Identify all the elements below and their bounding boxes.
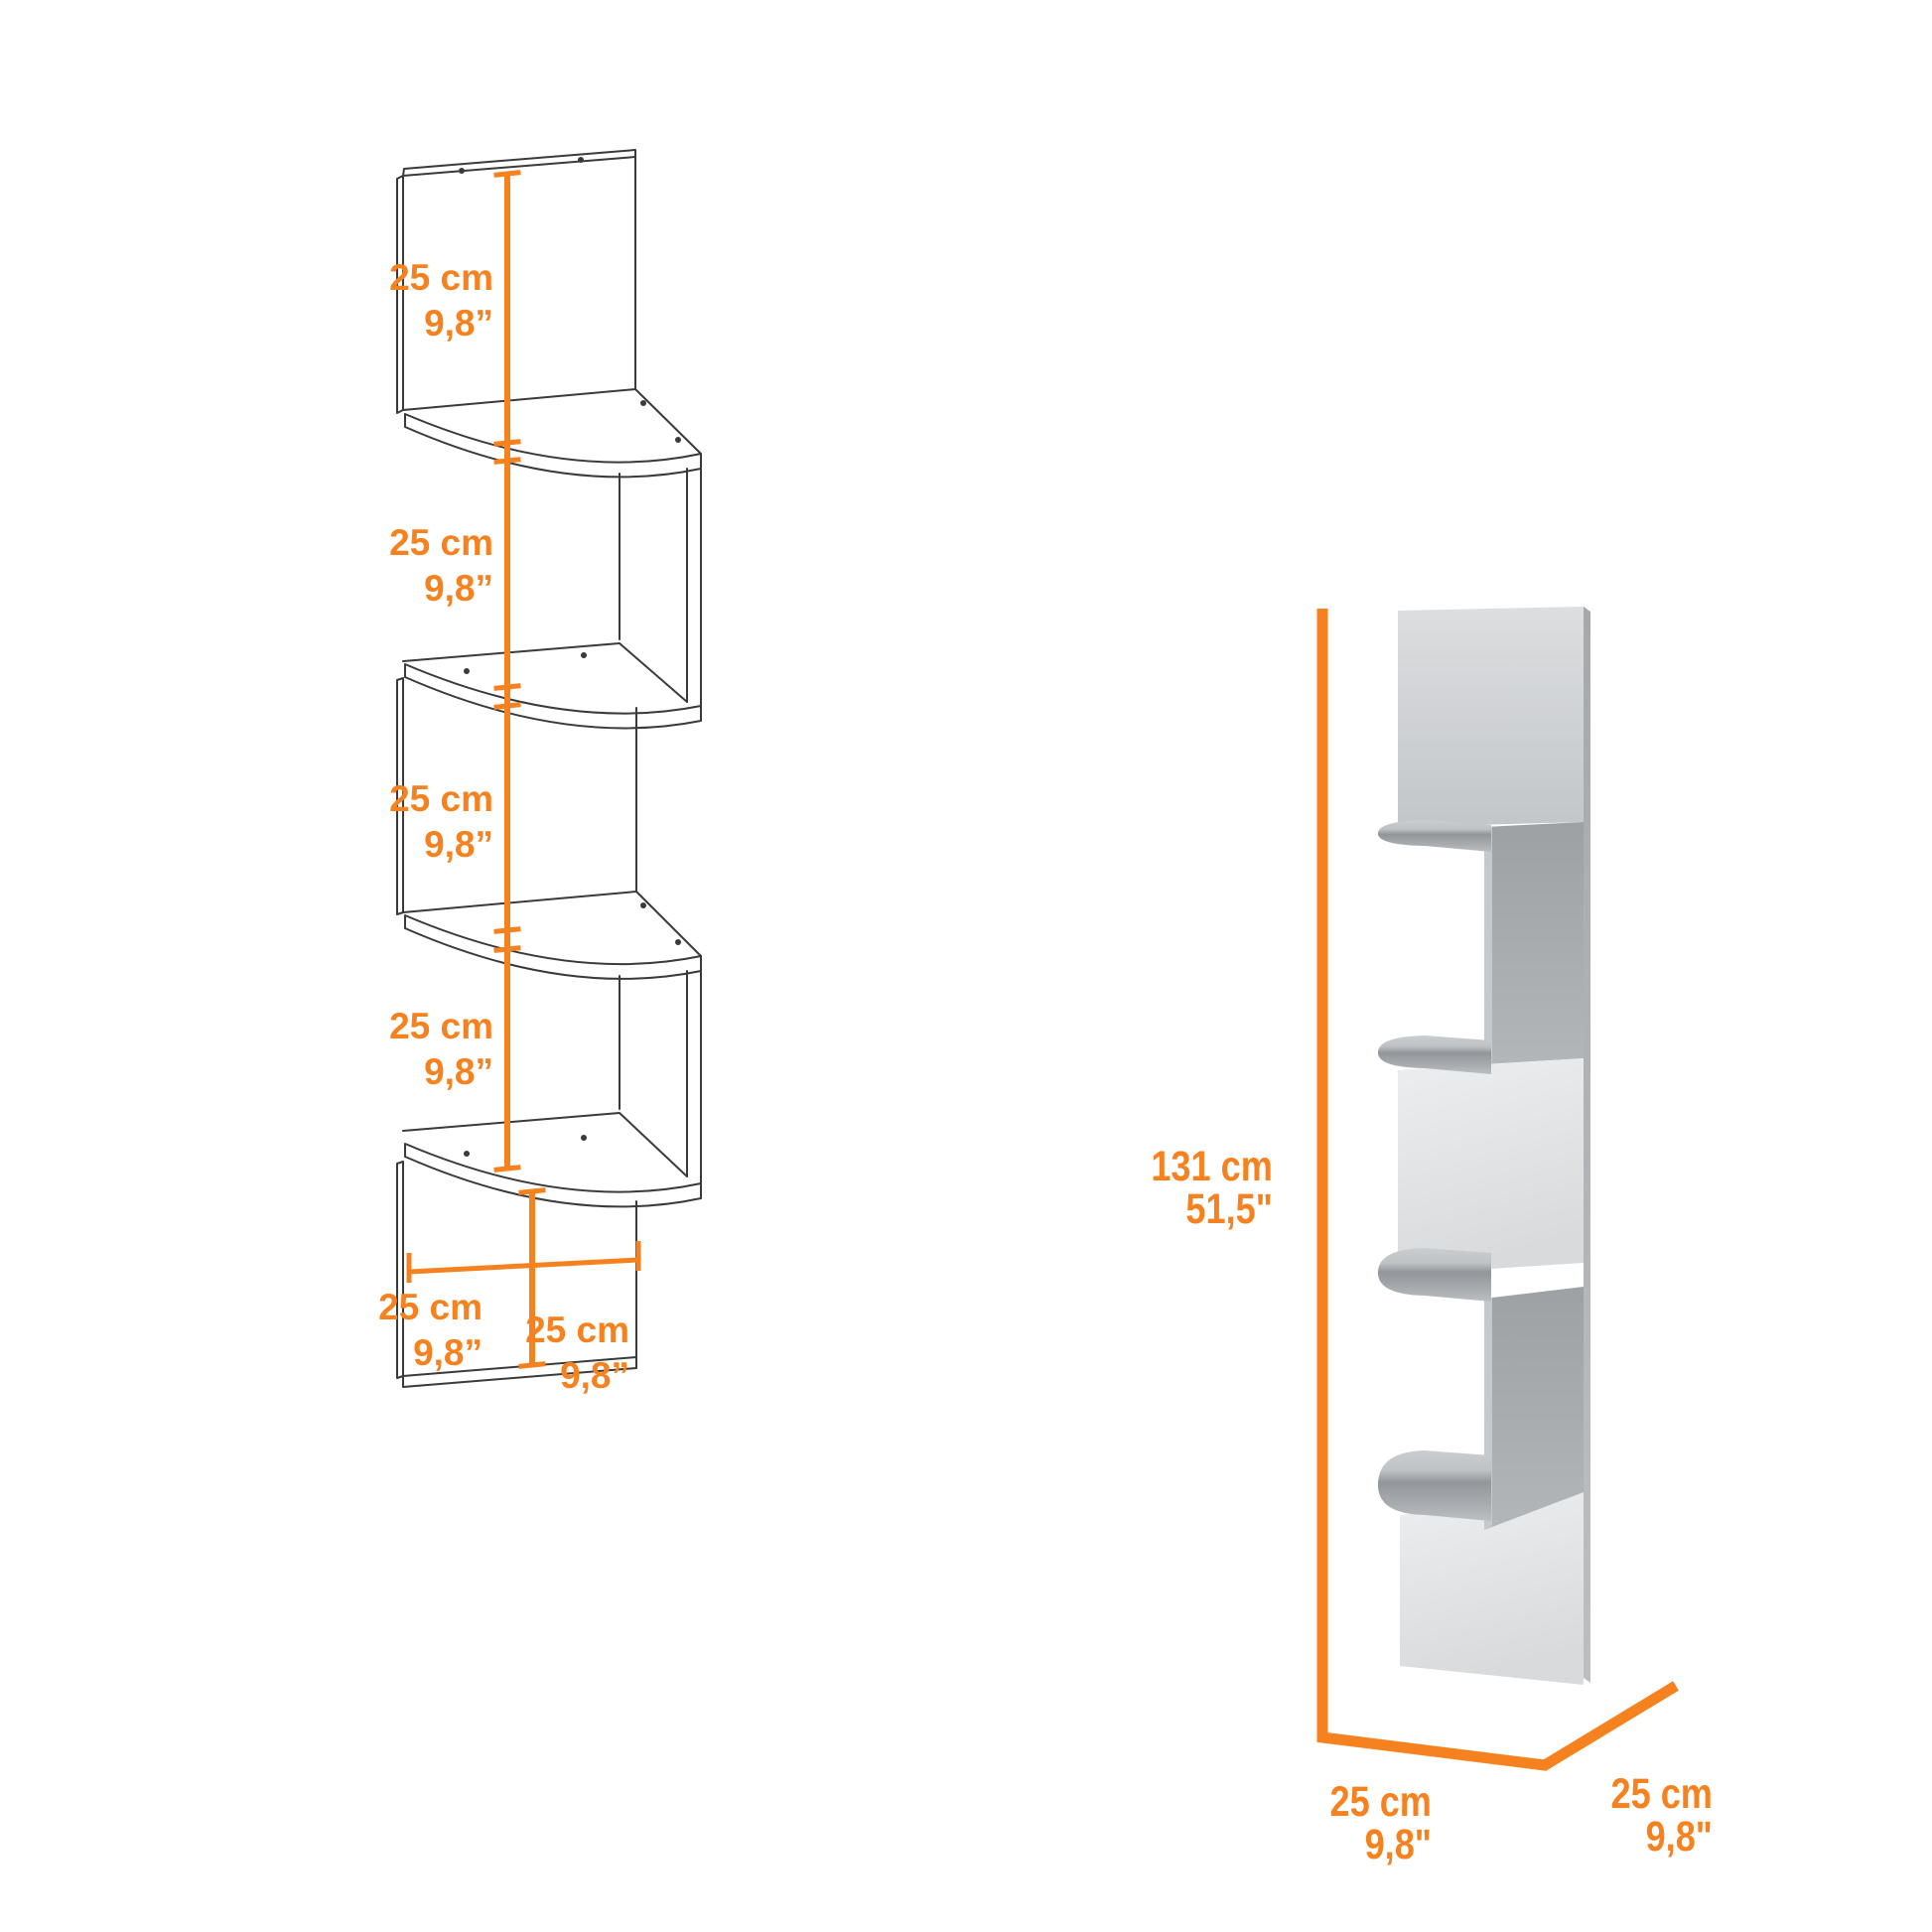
render-shelf-1 <box>1378 820 1491 852</box>
metric-value: 131 cm <box>1151 1146 1273 1188</box>
section-2-height-label: 25 cm 9,8” <box>389 520 493 612</box>
section-3-height-label: 25 cm 9,8” <box>389 776 493 868</box>
corner-shelf-3d-render <box>1378 607 1590 1685</box>
metric-value: 25 cm <box>389 255 493 301</box>
render-side-panel-2 <box>1484 1287 1584 1530</box>
width-dimension-line <box>407 1241 641 1283</box>
diagram-artwork <box>0 0 1932 1932</box>
render-middle-panel <box>1398 1058 1584 1275</box>
product-dimensions-diagram: 25 cm 9,8” 25 cm 9,8” 25 cm 9,8” 25 cm 9… <box>0 0 1932 1932</box>
width-label: 25 cm 9,8” <box>378 1285 483 1376</box>
render-shelf-2 <box>1378 1035 1491 1074</box>
open-section-1 <box>620 469 701 706</box>
render-shelf-4 <box>1378 1450 1491 1521</box>
section-height-dimension-line <box>493 170 520 1173</box>
section-1-height-label: 25 cm 9,8” <box>389 255 493 346</box>
imperial-value: 9,8” <box>389 1049 493 1095</box>
metric-value: 25 cm <box>378 1285 483 1330</box>
render-height-label: 131 cm 51,5" <box>1151 1146 1273 1231</box>
render-shelf-3 <box>1378 1248 1491 1302</box>
metric-value: 25 cm <box>389 1004 493 1049</box>
imperial-value: 51,5" <box>1151 1188 1273 1231</box>
imperial-value: 9,8” <box>389 566 493 612</box>
shelf-1 <box>405 389 701 477</box>
render-side-panel-1 <box>1484 822 1584 1064</box>
imperial-value: 9,8” <box>378 1330 483 1376</box>
imperial-value: 9,8" <box>1611 1816 1713 1859</box>
imperial-value: 9,8” <box>389 301 493 346</box>
imperial-value: 9,8” <box>525 1353 629 1399</box>
metric-value: 25 cm <box>1330 1781 1432 1824</box>
imperial-value: 9,8” <box>389 822 493 868</box>
shelf-2 <box>403 643 701 728</box>
metric-value: 25 cm <box>525 1308 629 1353</box>
render-side-panel-1-edge <box>1484 827 1492 1064</box>
metric-value: 25 cm <box>389 776 493 822</box>
shelf-3 <box>405 892 701 979</box>
render-top-panel <box>1398 607 1584 827</box>
metric-value: 25 cm <box>1611 1773 1713 1816</box>
render-width-label: 25 cm 9,8" <box>1611 1773 1713 1859</box>
imperial-value: 9,8" <box>1330 1824 1432 1866</box>
section-4-height-label: 25 cm 9,8” <box>389 1004 493 1095</box>
render-depth-label: 25 cm 9,8" <box>1330 1781 1432 1866</box>
shelf-4 <box>403 1113 701 1206</box>
bottom-section-label: 25 cm 9,8” <box>525 1308 629 1399</box>
render-right-edge <box>1584 607 1590 1683</box>
metric-value: 25 cm <box>389 520 493 566</box>
